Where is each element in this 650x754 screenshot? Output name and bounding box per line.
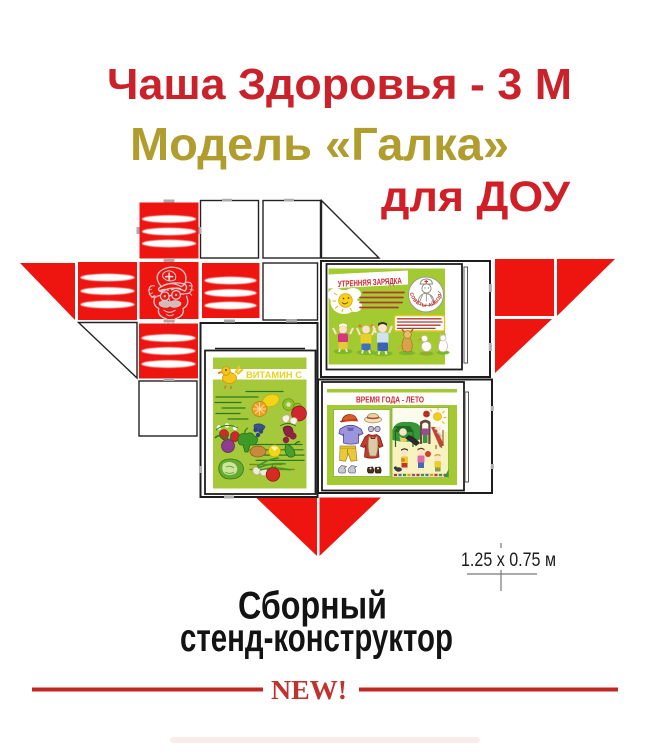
svg-text:Чаша Здоровья - 3 М: Чаша Здоровья - 3 М [107, 60, 572, 109]
svg-text:для ДОУ: для ДОУ [381, 173, 571, 221]
svg-text:NEW!: NEW! [271, 675, 347, 705]
svg-text:ВРЕМЯ ГОДА - ЛЕТО: ВРЕМЯ ГОДА - ЛЕТО [356, 395, 424, 405]
svg-text:Модель «Галка»: Модель «Галка» [130, 118, 509, 170]
svg-text:1.25 x 0.75 м: 1.25 x 0.75 м [461, 550, 556, 571]
svg-text:ВИТАМИН С: ВИТАМИН С [246, 370, 303, 380]
svg-text:стенд-конструктор: стенд-конструктор [180, 617, 453, 660]
